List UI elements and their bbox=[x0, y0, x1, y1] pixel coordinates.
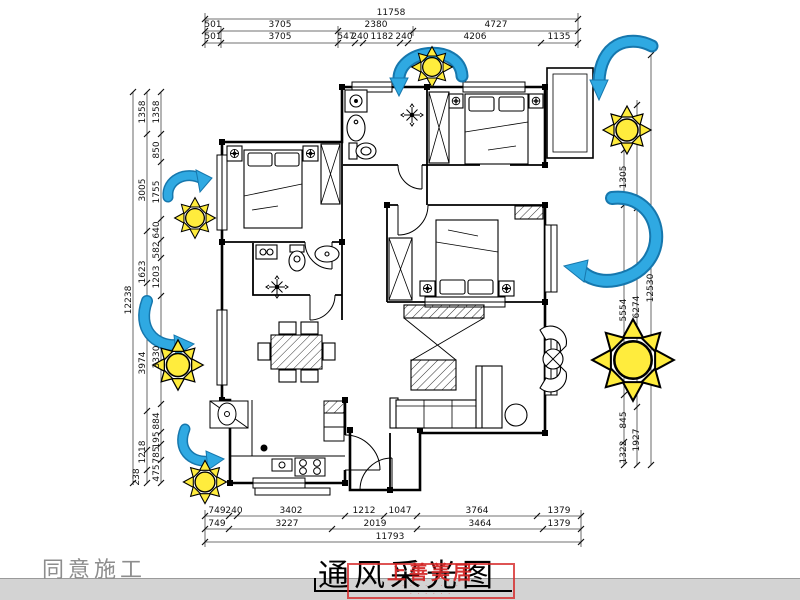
dim-label: 501 bbox=[204, 32, 221, 42]
dim-label: 1182 bbox=[371, 32, 394, 42]
sun-icon bbox=[175, 198, 216, 239]
entry-step bbox=[255, 488, 330, 495]
dim-label: 2019 bbox=[364, 519, 387, 529]
dim-label: 4727 bbox=[485, 20, 508, 30]
watermark-subtext: · · · · · · bbox=[410, 591, 452, 599]
dim-label: 5554 bbox=[619, 299, 629, 322]
dim-label: 749 bbox=[208, 506, 225, 516]
watermark-text: 上善美居 bbox=[387, 564, 475, 583]
bathroom-top bbox=[345, 90, 376, 159]
dim-label: 1047 bbox=[389, 506, 412, 516]
dim-label: 582 bbox=[152, 241, 162, 258]
dim-label: 240 bbox=[351, 32, 368, 42]
bathroom-left bbox=[256, 245, 339, 271]
dim-label: 850 bbox=[152, 141, 162, 158]
dim-label: 3705 bbox=[269, 20, 292, 30]
dim-label: 3464 bbox=[469, 519, 492, 529]
sun-icon bbox=[183, 460, 226, 503]
dining-area bbox=[258, 322, 335, 382]
dim-label: 1927 bbox=[632, 429, 642, 452]
wind-arrow-top-right bbox=[590, 41, 652, 100]
dim-label: 4206 bbox=[464, 32, 487, 42]
dim-label: 1379 bbox=[548, 506, 571, 516]
bedroom-middleright bbox=[389, 206, 543, 300]
dim-label: 240 bbox=[395, 32, 412, 42]
dim-label: 2380 bbox=[365, 20, 388, 30]
dim-label: 1755 bbox=[152, 181, 162, 204]
dim-label: 1305 bbox=[619, 166, 629, 189]
dim-label: 1358 bbox=[152, 101, 162, 124]
sun-icon bbox=[412, 47, 453, 88]
watermark-subtext: · · · · · · · · · · bbox=[395, 583, 468, 591]
dim-label: 238 bbox=[132, 468, 142, 485]
dim-label: 1623 bbox=[138, 261, 148, 284]
sun-icon bbox=[603, 106, 651, 154]
bedroom-topright bbox=[429, 92, 543, 164]
dim-label: 749 bbox=[208, 519, 225, 529]
dim-label: 240 bbox=[225, 506, 242, 516]
dim-label: 3227 bbox=[276, 519, 299, 529]
dim-label: 3705 bbox=[269, 32, 292, 42]
laundry-box bbox=[210, 401, 248, 428]
dim-label: 1322 bbox=[619, 441, 629, 464]
bedroom-topleft bbox=[227, 144, 340, 228]
dim-label: 6274 bbox=[632, 296, 642, 319]
dim-label: 11758 bbox=[377, 8, 406, 18]
dim-label: 3402 bbox=[280, 506, 303, 516]
living-room bbox=[390, 305, 566, 428]
wind-arrow-right bbox=[564, 198, 656, 282]
dim-label: 3330 bbox=[152, 346, 162, 369]
dim-label: 501 bbox=[204, 20, 221, 30]
dim-label: 1135 bbox=[548, 32, 571, 42]
dim-label: 1358 bbox=[138, 101, 148, 124]
floorplan-page: 11758 501 3705 2380 4727 501 3705 547 24… bbox=[0, 0, 800, 600]
dim-label: 1379 bbox=[548, 519, 571, 529]
dim-label: 12238 bbox=[124, 286, 134, 315]
doors bbox=[305, 165, 428, 490]
dim-label: 640 bbox=[152, 221, 162, 238]
sun-icon bbox=[592, 319, 674, 401]
dim-label: 785 bbox=[152, 446, 162, 463]
dim-label: 3764 bbox=[466, 506, 489, 516]
dim-label: 12530 bbox=[646, 274, 656, 303]
dim-label: 3005 bbox=[138, 179, 148, 202]
dim-label: 1212 bbox=[353, 506, 376, 516]
title-underline-stub bbox=[314, 578, 316, 590]
approval-note: 同意施工 bbox=[42, 552, 146, 584]
dim-label: 3974 bbox=[138, 352, 148, 375]
dim-label: 884 bbox=[152, 412, 162, 429]
wind-arrow-left-top bbox=[168, 170, 212, 197]
dim-label: 1218 bbox=[138, 441, 148, 464]
watermark-stamp: 上善美居 · · · · · · · · · · · · · · · · bbox=[347, 563, 515, 599]
dim-label: 1203 bbox=[152, 266, 162, 289]
dim-label: 475 bbox=[152, 464, 162, 481]
balcony-outline bbox=[547, 68, 593, 158]
dim-label: 845 bbox=[619, 411, 629, 428]
dim-label: 11793 bbox=[376, 532, 405, 542]
